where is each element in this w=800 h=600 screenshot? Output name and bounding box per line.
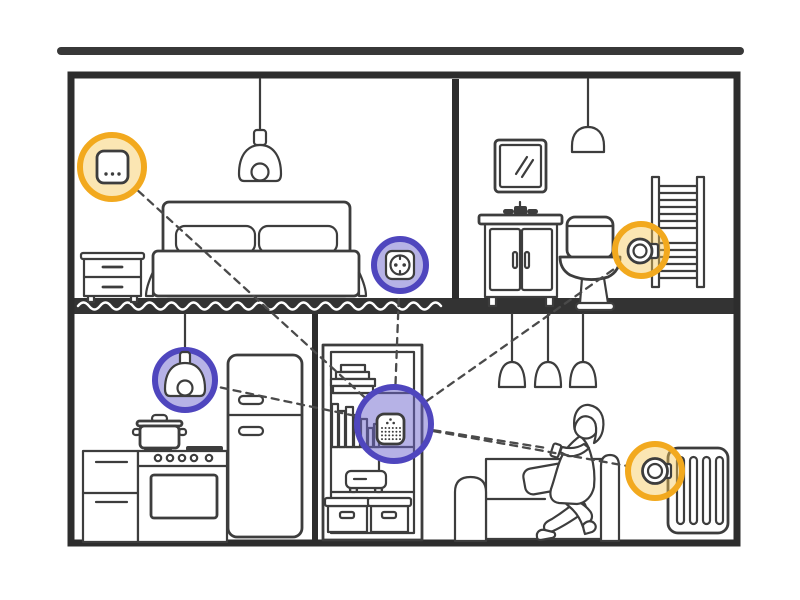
blanket-drape-left bbox=[146, 272, 153, 296]
smartphone bbox=[550, 443, 562, 458]
pendant-lamp-2 bbox=[535, 362, 561, 387]
foot-raised bbox=[583, 521, 596, 534]
floor-band bbox=[74, 298, 734, 314]
illustration-canvas bbox=[0, 0, 800, 600]
oven-door bbox=[151, 475, 217, 518]
nightstand bbox=[81, 253, 144, 302]
bulb-icon bbox=[252, 164, 269, 181]
door-handle bbox=[513, 252, 517, 268]
toilet-tank bbox=[567, 217, 613, 258]
fridge bbox=[228, 355, 302, 537]
pillow-left bbox=[176, 226, 255, 253]
kitchen-cabinet bbox=[83, 451, 138, 542]
smart-switch-icon bbox=[97, 151, 128, 183]
pendant-lamp-3 bbox=[570, 362, 596, 387]
mattress bbox=[153, 251, 359, 296]
wall-kitchen-livingroom bbox=[312, 314, 318, 542]
connection-hub-phone bbox=[434, 430, 548, 448]
toilet-bowl bbox=[560, 257, 620, 280]
bed bbox=[146, 202, 366, 296]
door-handle bbox=[525, 252, 529, 268]
stove bbox=[138, 446, 227, 542]
fridge-handle bbox=[239, 396, 263, 404]
smart-home-illustration bbox=[0, 0, 800, 600]
bathroom-pendant-lamp bbox=[572, 127, 604, 152]
vanity-sink bbox=[479, 202, 562, 306]
smart-plug-icon bbox=[386, 251, 414, 279]
box-handle-slot bbox=[382, 512, 396, 518]
radiator-rail bbox=[697, 177, 704, 287]
storage-boxes bbox=[325, 498, 411, 532]
sofa-armrest-right bbox=[601, 455, 619, 541]
smart-hub-icon bbox=[377, 414, 404, 444]
cooking-pot bbox=[133, 415, 186, 448]
sofa-armrest-left bbox=[455, 477, 486, 541]
toilet bbox=[560, 217, 620, 310]
box-handle-slot bbox=[340, 512, 354, 518]
pillow-right bbox=[259, 226, 337, 253]
burner-icon bbox=[186, 446, 223, 451]
blanket-drape-right bbox=[359, 272, 366, 296]
living-room bbox=[455, 314, 728, 541]
fridge-handle bbox=[239, 427, 263, 435]
wall-bedroom-bathroom bbox=[452, 79, 459, 299]
mirror bbox=[495, 140, 546, 192]
bedroom-pendant-lamp bbox=[239, 130, 281, 181]
pendant-lamp-1 bbox=[499, 362, 525, 387]
top-divider-bar bbox=[57, 47, 744, 55]
foot-floor bbox=[537, 530, 555, 540]
bathroom bbox=[479, 79, 704, 310]
